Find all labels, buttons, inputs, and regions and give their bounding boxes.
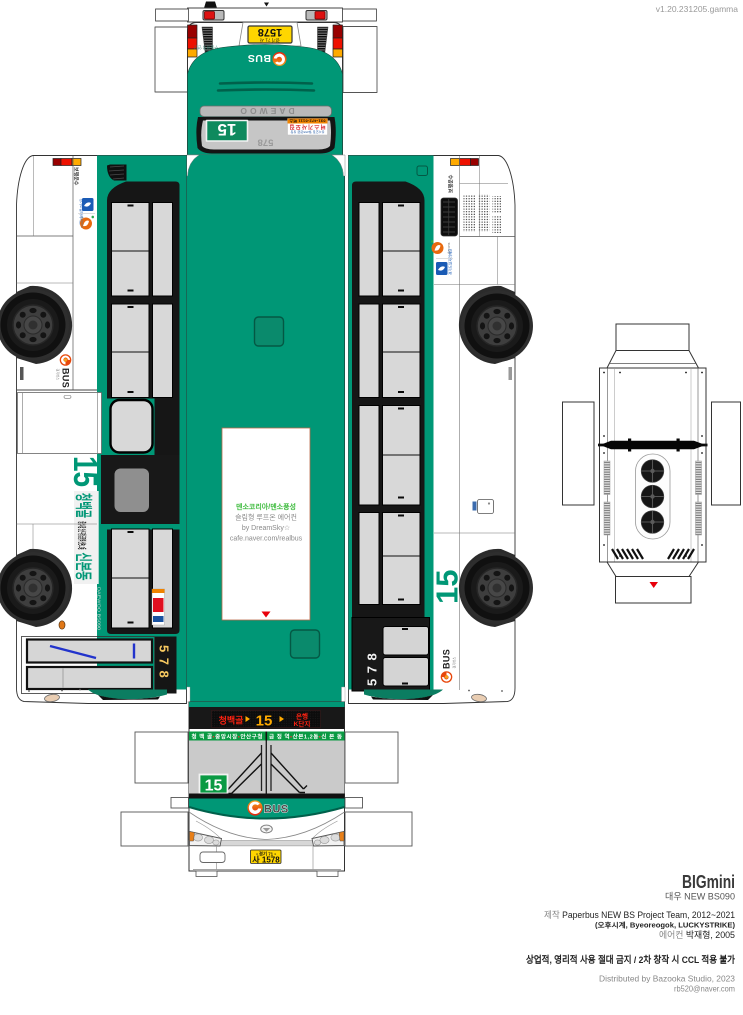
- svg-text:DAEWOO: DAEWOO: [237, 106, 294, 116]
- svg-text:중앙시장 안산구청 금정역 산본1,2동: 중앙시장 안산구청 금정역 산본1,2동: [77, 522, 87, 550]
- svg-text:BUS: BUS: [61, 368, 71, 388]
- svg-text:Aerons: Aerons: [80, 217, 84, 229]
- svg-text:031-472-0111 버스: 031-472-0111 버스: [289, 119, 326, 124]
- svg-text:by DreamSky☆: by DreamSky☆: [242, 524, 290, 532]
- svg-text:578: 578: [258, 137, 274, 148]
- svg-text:15: 15: [256, 713, 273, 730]
- svg-text:청 백 골▪중앙시장▪안산구청: 청 백 골▪중앙시장▪안산구청: [192, 733, 263, 741]
- svg-text:경기버스: 경기버스: [56, 369, 61, 381]
- svg-text:BUS: BUS: [442, 649, 452, 669]
- svg-text:경기도일자리재단: 경기도일자리재단: [448, 248, 453, 275]
- svg-text:슬림형 루프온 에어컨: 슬림형 루프온 에어컨: [235, 513, 297, 522]
- svg-text:버스기사모집: 버스기사모집: [290, 123, 326, 131]
- svg-text:에어컨 박재형, 2005: 에어컨 박재형, 2005: [659, 930, 735, 940]
- svg-text:(오후시계, Byeoreogok, LUCKYSTRIKE: (오후시계, Byeoreogok, LUCKYSTRIKE): [595, 921, 735, 930]
- svg-text:청백골: 청백골: [74, 493, 94, 518]
- svg-text:Distributed by Bazooka Studio,: Distributed by Bazooka Studio, 2023: [599, 974, 735, 984]
- svg-text:금 정 역▪산본1,2동▪신 본 동: 금 정 역▪산본1,2동▪신 본 동: [269, 733, 342, 741]
- svg-text:대우 NEW BS090: 대우 NEW BS090: [665, 892, 735, 902]
- svg-text:BUS: BUS: [247, 52, 271, 64]
- svg-text:제작 Paperbus NEW BS Project Tea: 제작 Paperbus NEW BS Project Team, 2012~20…: [544, 910, 735, 920]
- svg-text:보행운수: 보행운수: [448, 174, 455, 193]
- svg-text:cafe.naver.com/realbus: cafe.naver.com/realbus: [230, 536, 303, 543]
- svg-text:1578: 1578: [258, 26, 282, 38]
- svg-text:은행: 은행: [296, 712, 308, 721]
- svg-text:보행운수: 보행운수: [73, 167, 80, 186]
- svg-text:DAEWOO BS090: DAEWOO BS090: [97, 587, 102, 631]
- svg-text:578: 578: [365, 648, 380, 686]
- svg-text:rb520@naver.com: rb520@naver.com: [674, 984, 735, 994]
- svg-text:신본동: 신본동: [74, 553, 93, 581]
- svg-text:K단지: K단지: [294, 719, 311, 728]
- svg-text:15: 15: [218, 120, 237, 139]
- svg-text:15: 15: [205, 778, 223, 795]
- svg-text:경기 71 사: 경기 71 사: [259, 37, 280, 44]
- svg-text:상시모집 월255만원 상담: 상시모집 월255만원 상담: [290, 130, 324, 135]
- svg-text:덴소코리아/덴소풍성: 덴소코리아/덴소풍성: [236, 502, 296, 511]
- svg-text:사 1578: 사 1578: [252, 855, 280, 865]
- svg-text:v1.20.231205.gamma: v1.20.231205.gamma: [656, 4, 738, 14]
- svg-text:578: 578: [157, 645, 172, 683]
- svg-text:청백골: 청백골: [219, 715, 244, 726]
- svg-text:상업적, 영리적 사용 절대 금지 / 2차 창작 시 CC: 상업적, 영리적 사용 절대 금지 / 2차 창작 시 CCL 적용 불가: [526, 954, 735, 966]
- svg-text:BIGmini: BIGmini: [682, 872, 735, 892]
- svg-text:15: 15: [67, 456, 104, 487]
- svg-text:경기버스: 경기버스: [452, 657, 457, 669]
- svg-text:BUS: BUS: [264, 804, 289, 816]
